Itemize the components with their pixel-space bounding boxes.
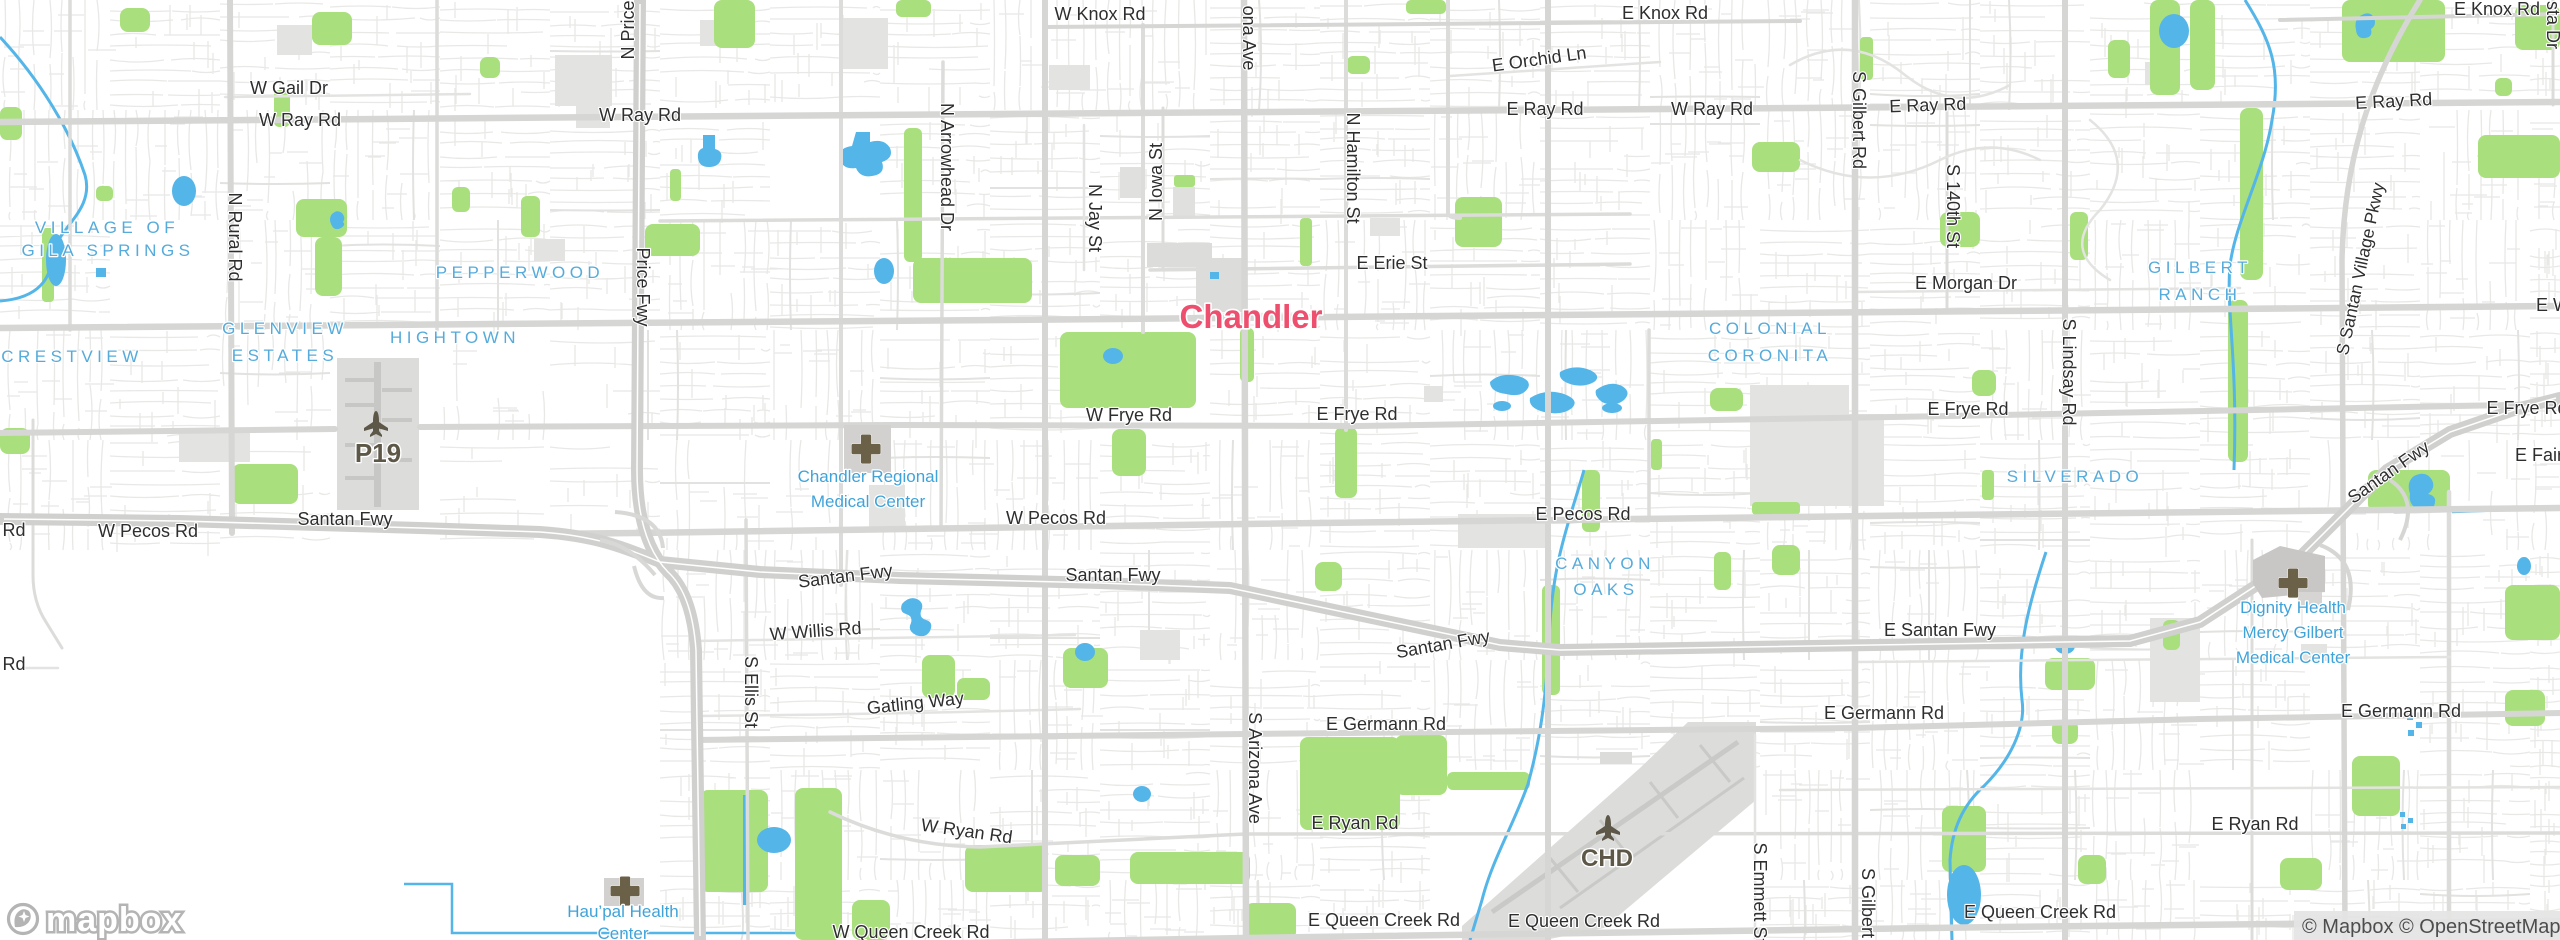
- svg-text:Rd: Rd: [2, 654, 25, 674]
- svg-text:P19: P19: [355, 438, 401, 468]
- svg-text:E Knox Rd: E Knox Rd: [2454, 0, 2540, 19]
- svg-text:PEPPERWOOD: PEPPERWOOD: [436, 263, 604, 282]
- svg-text:Center: Center: [597, 924, 648, 940]
- svg-text:E Morgan Dr: E Morgan Dr: [1915, 273, 2017, 293]
- svg-text:mapbox: mapbox: [46, 901, 182, 939]
- svg-text:GILA SPRINGS: GILA SPRINGS: [21, 241, 194, 260]
- svg-text:Santan Fwy: Santan Fwy: [1065, 565, 1160, 585]
- svg-text:Hau’pal Health: Hau’pal Health: [567, 902, 679, 921]
- svg-text:N Price: N Price: [618, 0, 638, 59]
- svg-text:E Knox Rd: E Knox Rd: [1622, 3, 1708, 23]
- svg-text:COLONIAL: COLONIAL: [1709, 319, 1831, 338]
- svg-text:Mercy Gilbert: Mercy Gilbert: [2242, 623, 2343, 642]
- svg-text:W Ray Rd: W Ray Rd: [1671, 99, 1753, 119]
- svg-text:Medical Center: Medical Center: [811, 492, 926, 511]
- svg-text:W Pecos Rd: W Pecos Rd: [1006, 508, 1106, 528]
- svg-text:E Frye Rd: E Frye Rd: [2486, 398, 2560, 418]
- svg-text:Chandler Regional: Chandler Regional: [798, 467, 939, 486]
- svg-text:CANYON: CANYON: [1555, 554, 1655, 573]
- svg-text:E Queen Creek Rd: E Queen Creek Rd: [1308, 910, 1460, 930]
- svg-text:Price Fwy: Price Fwy: [633, 247, 653, 326]
- svg-text:S 140th St: S 140th St: [1943, 164, 1963, 248]
- svg-text:E Queen Creek Rd: E Queen Creek Rd: [1508, 911, 1660, 931]
- svg-text:N Arrowhead Dr: N Arrowhead Dr: [937, 103, 957, 231]
- svg-text:S Lindsay Rd: S Lindsay Rd: [2059, 318, 2079, 425]
- svg-text:N Rural Rd: N Rural Rd: [225, 192, 245, 281]
- svg-text:E Queen Creek Rd: E Queen Creek Rd: [1964, 902, 2116, 922]
- svg-text:E Santan Fwy: E Santan Fwy: [1884, 620, 1996, 640]
- svg-text:S Emmett St: S Emmett St: [1750, 842, 1770, 940]
- svg-text:W Ray Rd: W Ray Rd: [599, 105, 681, 125]
- svg-text:ESTATES: ESTATES: [232, 346, 338, 365]
- svg-text:E Frye Rd: E Frye Rd: [1927, 399, 2008, 419]
- svg-text:E Ryan Rd: E Ryan Rd: [1311, 813, 1398, 833]
- svg-text:VILLAGE OF: VILLAGE OF: [35, 218, 179, 237]
- svg-text:N Hamilton St: N Hamilton St: [1343, 112, 1363, 223]
- svg-text:W Knox Rd: W Knox Rd: [1054, 4, 1145, 24]
- svg-text:E Frye Rd: E Frye Rd: [1316, 404, 1397, 424]
- svg-text:W Ray Rd: W Ray Rd: [259, 110, 341, 130]
- svg-text:RANCH: RANCH: [2159, 285, 2242, 304]
- svg-text:E Germann Rd: E Germann Rd: [1326, 714, 1446, 734]
- svg-text:S Gilbert Rd: S Gilbert Rd: [1849, 71, 1869, 169]
- svg-text:E Germann Rd: E Germann Rd: [2341, 701, 2461, 721]
- svg-text:E Ryan Rd: E Ryan Rd: [2211, 814, 2298, 834]
- svg-text:E Erie St: E Erie St: [1356, 253, 1427, 273]
- svg-text:E W: E W: [2536, 295, 2560, 315]
- svg-text:Medical Center: Medical Center: [2236, 648, 2351, 667]
- svg-text:CHD: CHD: [1581, 845, 1633, 872]
- svg-text:W Queen Creek Rd: W Queen Creek Rd: [832, 922, 989, 940]
- svg-text:W Frye Rd: W Frye Rd: [1086, 405, 1172, 425]
- svg-text:W Gail Dr: W Gail Dr: [250, 78, 328, 98]
- svg-text:sta Dr: sta Dr: [2543, 1, 2560, 49]
- svg-text:GLENVIEW: GLENVIEW: [222, 319, 348, 338]
- svg-text:OAKS: OAKS: [1573, 580, 1638, 599]
- svg-text:Santan Fwy: Santan Fwy: [297, 509, 392, 529]
- svg-text:E Ray Rd: E Ray Rd: [1506, 99, 1583, 119]
- svg-text:E Ray Rd: E Ray Rd: [1889, 94, 1967, 117]
- svg-text:S Arizona Ave: S Arizona Ave: [1245, 712, 1265, 824]
- svg-text:N Jay St: N Jay St: [1085, 184, 1105, 252]
- svg-text:GILBERT: GILBERT: [2148, 258, 2252, 277]
- svg-text:W Pecos Rd: W Pecos Rd: [98, 521, 198, 541]
- svg-text:CRESTVIEW: CRESTVIEW: [1, 347, 143, 366]
- svg-text:HIGHTOWN: HIGHTOWN: [390, 328, 520, 347]
- svg-text:N Iowa St: N Iowa St: [1146, 143, 1166, 221]
- svg-text:© Mapbox © OpenStreetMap: © Mapbox © OpenStreetMap: [2302, 916, 2560, 938]
- svg-text:E Ray Rd: E Ray Rd: [2355, 89, 2433, 113]
- svg-text:CORONITA: CORONITA: [1708, 346, 1832, 365]
- svg-text:S Ellis St: S Ellis St: [741, 656, 761, 728]
- svg-text:Chandler: Chandler: [1179, 298, 1322, 335]
- svg-text:ona Ave: ona Ave: [1239, 6, 1259, 71]
- svg-text:SILVERADO: SILVERADO: [2007, 467, 2144, 486]
- svg-text:E Fairview St: E Fairview St: [2515, 445, 2560, 465]
- svg-text:E Germann Rd: E Germann Rd: [1824, 703, 1944, 723]
- svg-text:Rd: Rd: [2, 520, 25, 540]
- svg-text:Dignity Health: Dignity Health: [2240, 598, 2346, 617]
- svg-text:E Pecos Rd: E Pecos Rd: [1535, 504, 1630, 524]
- svg-text:S Gilbert Rd: S Gilbert Rd: [1858, 868, 1878, 940]
